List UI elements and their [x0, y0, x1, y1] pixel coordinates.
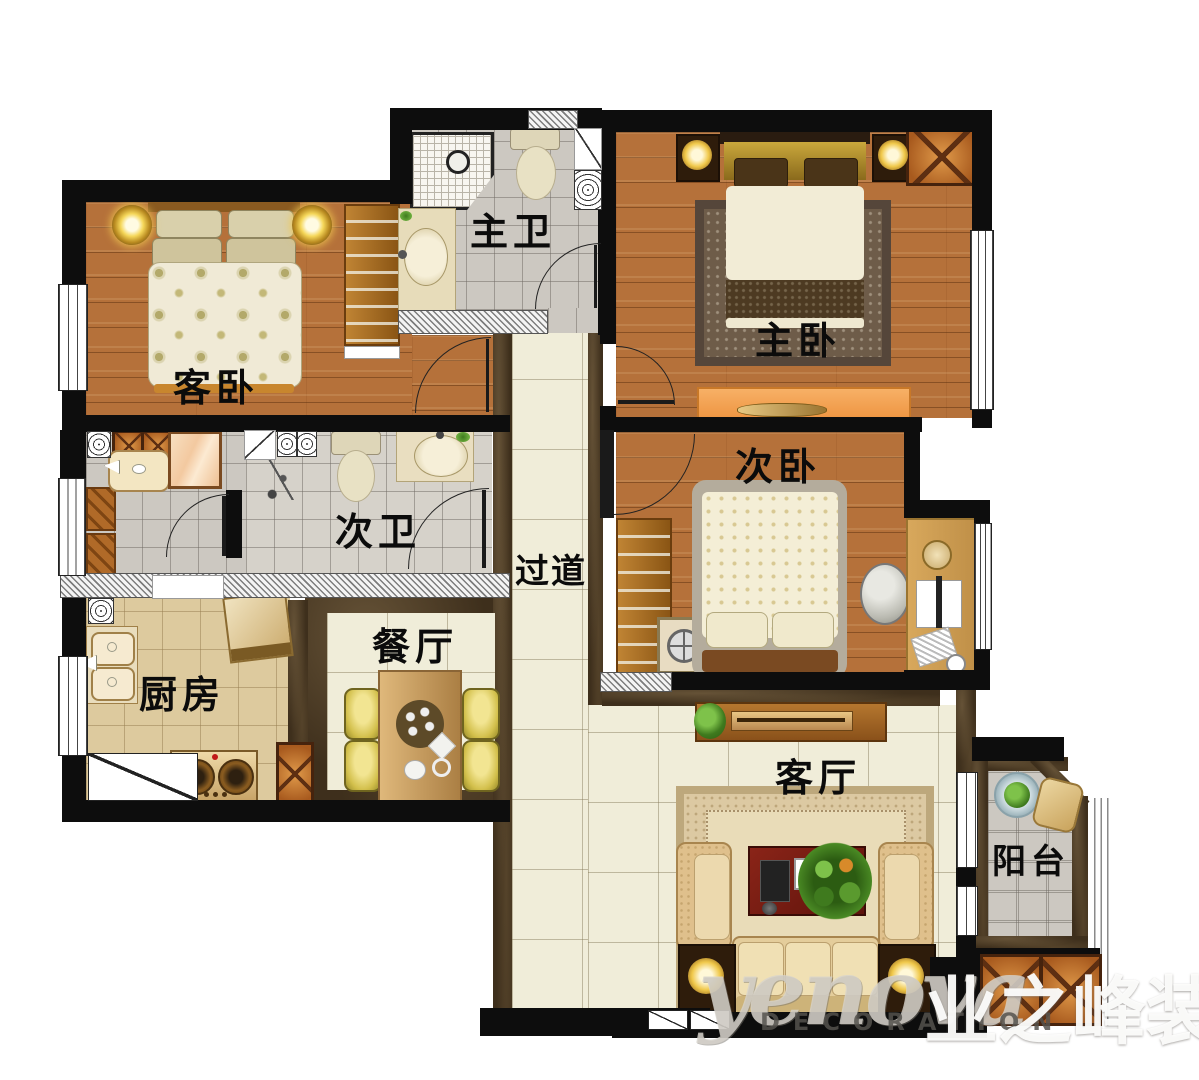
entry-sill [690, 1010, 730, 1030]
master-bathroom-door-floor [548, 308, 600, 335]
pillow [734, 158, 788, 188]
window [58, 284, 88, 391]
pillow [706, 612, 768, 648]
door-leaf [486, 339, 489, 412]
cabinet-icon [276, 742, 314, 806]
armchair [878, 842, 934, 950]
mirror-cabinet [168, 431, 222, 489]
pillow [772, 612, 834, 648]
monitor-stand-icon [936, 576, 942, 628]
room-label-guest-bedroom: 客卧 [173, 369, 259, 407]
armchair-seat [694, 854, 730, 940]
master-bed-blanket [726, 280, 864, 320]
wash-basin-icon [404, 228, 448, 286]
faucet-icon [398, 250, 407, 259]
wall-segment [62, 751, 86, 803]
guest-wardrobe [344, 204, 400, 346]
faucet-icon [436, 431, 444, 439]
sofa [732, 936, 880, 1016]
wall-segment [62, 800, 510, 822]
water-heater-icon [574, 128, 602, 170]
wall-segment [930, 957, 960, 1015]
kettle-icon [762, 902, 777, 915]
room-label-hallway: 过道 [515, 555, 587, 589]
toilet-bowl [516, 146, 556, 200]
window [970, 230, 994, 410]
vent-coil-icon [88, 598, 114, 624]
sofa-cushion [832, 942, 878, 996]
door-leaf [618, 400, 674, 404]
door-leaf-open [600, 430, 614, 518]
floor-lamp-icon [888, 958, 924, 994]
wall-segment [600, 110, 992, 132]
floor-plan: 客卧 主卫 主卧 次卫 次卧 过道 厨房 餐厅 客厅 阳台 yenova DEC… [0, 0, 1199, 1080]
hallway-border-right [588, 333, 603, 705]
vent-coil-icon [277, 431, 297, 457]
plant-icon [456, 432, 470, 442]
door-opening [152, 575, 224, 599]
door-leaf [482, 490, 486, 568]
drain-icon [107, 677, 117, 687]
wardrobe-column-icon [906, 128, 978, 186]
table-plant-icon [798, 842, 872, 920]
wall-segment [600, 132, 616, 344]
room-label-dining: 餐厅 [372, 628, 458, 666]
wall-hatch [398, 310, 548, 334]
master-bed [720, 130, 870, 330]
dining-chair [462, 688, 500, 740]
laptop-icon [760, 860, 790, 902]
knob-icon [213, 792, 218, 797]
wall-segment [670, 672, 906, 690]
desk-cup-icon [922, 540, 952, 570]
door-leaf [222, 496, 226, 556]
desk-chair [860, 563, 910, 625]
vent-coil-icon [297, 431, 317, 457]
knob-icon [204, 792, 209, 797]
armchair-seat [884, 854, 920, 940]
wall-hatch [600, 672, 672, 692]
plant-icon [694, 703, 726, 739]
pillow [156, 210, 222, 238]
floor-lamp-icon [688, 958, 724, 994]
room-label-second-bathroom: 次卫 [335, 513, 421, 551]
knob-icon [222, 792, 227, 797]
drain-icon [107, 642, 117, 652]
door-leaf [594, 245, 597, 308]
sofa-cushion [785, 942, 831, 996]
ring-icon [432, 758, 451, 777]
appliance-coil-icon [574, 170, 602, 210]
window [956, 772, 978, 868]
cabinet-door-icon [244, 430, 276, 460]
room-label-living: 客厅 [775, 759, 861, 797]
armchair [676, 842, 732, 950]
bedside-lamp-icon [878, 140, 908, 170]
bedside-lamp-icon [292, 205, 332, 245]
window [974, 523, 992, 650]
drain-icon [132, 464, 146, 474]
second-bed-foot [702, 650, 838, 672]
wall-segment [972, 737, 1064, 761]
wall-segment [62, 597, 86, 659]
wall-segment [62, 180, 86, 286]
desk [906, 518, 976, 674]
kitchen-sink-unit [86, 626, 138, 704]
wall-hatch [528, 110, 578, 129]
wall-segment [904, 418, 920, 510]
kitchen-dining-pillar [288, 600, 308, 752]
master-bed-duvet [726, 186, 864, 280]
dining-table [378, 670, 462, 805]
window [58, 478, 86, 576]
planter-box-icon [980, 954, 1042, 1026]
dining-chair [462, 740, 500, 792]
ignition-icon [212, 754, 218, 760]
room-label-balcony: 阳台 [992, 845, 1070, 879]
window [58, 656, 88, 756]
wall-segment [612, 417, 922, 432]
room-label-kitchen: 厨房 [139, 676, 225, 714]
bedside-lamp-icon [112, 205, 152, 245]
laundry-sink [108, 450, 170, 492]
room-label-master-bedroom: 主卧 [755, 322, 841, 360]
plant-icon [1004, 782, 1030, 808]
entry-sill [648, 1010, 688, 1030]
burner-icon [218, 759, 254, 795]
wall-hatch [60, 573, 510, 598]
pillow [228, 210, 294, 238]
storage-cabinet [86, 533, 116, 577]
wall-segment [972, 110, 992, 232]
shower-head-icon [446, 150, 470, 174]
sofa-cushion [738, 942, 784, 996]
pillow [804, 158, 858, 188]
hallway-floor [512, 333, 588, 1010]
room-label-second-bedroom: 次卧 [735, 448, 821, 486]
bedside-lamp-icon [682, 140, 712, 170]
wall-segment [904, 670, 990, 690]
wardrobe-sill [344, 346, 400, 359]
kitchen-bay-sill [88, 753, 198, 801]
dining-chair [344, 688, 382, 740]
wall-segment [60, 430, 86, 482]
dresser-tray [737, 403, 827, 417]
plant-icon [400, 211, 412, 221]
room-label-master-bathroom: 主卫 [470, 213, 556, 251]
wall-segment [62, 180, 412, 202]
window [956, 886, 978, 936]
range-hood [222, 590, 294, 663]
vent-coil-icon [87, 431, 111, 458]
wall-segment [62, 415, 510, 432]
cup-icon [404, 760, 426, 780]
dining-chair [344, 740, 382, 792]
tv-screen-slit [737, 718, 845, 722]
hallway-border-left [493, 333, 512, 1010]
storage-cabinet [86, 487, 116, 531]
planter-box-icon [1040, 954, 1102, 1026]
toilet-bowl [337, 450, 375, 502]
